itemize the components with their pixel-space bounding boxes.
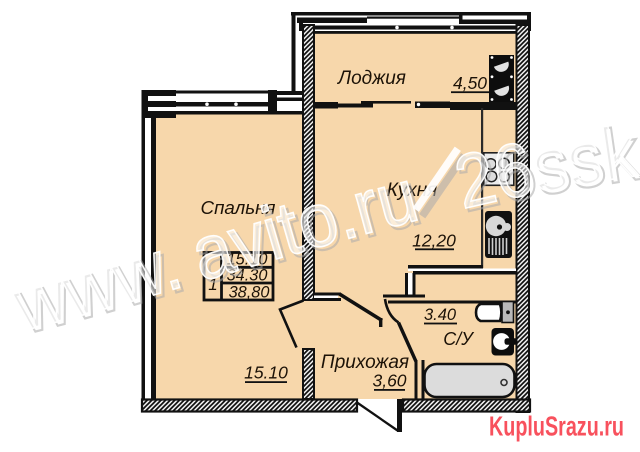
- svg-text:С/У: С/У: [443, 329, 474, 349]
- svg-text:4,50: 4,50: [453, 73, 487, 93]
- svg-text:3,60: 3,60: [372, 371, 406, 391]
- svg-text:Лоджия: Лоджия: [336, 68, 406, 89]
- svg-text:3.40: 3.40: [424, 306, 457, 324]
- svg-text:15.10: 15.10: [244, 363, 288, 383]
- svg-text:KupluSrazu.ru: KupluSrazu.ru: [489, 411, 624, 442]
